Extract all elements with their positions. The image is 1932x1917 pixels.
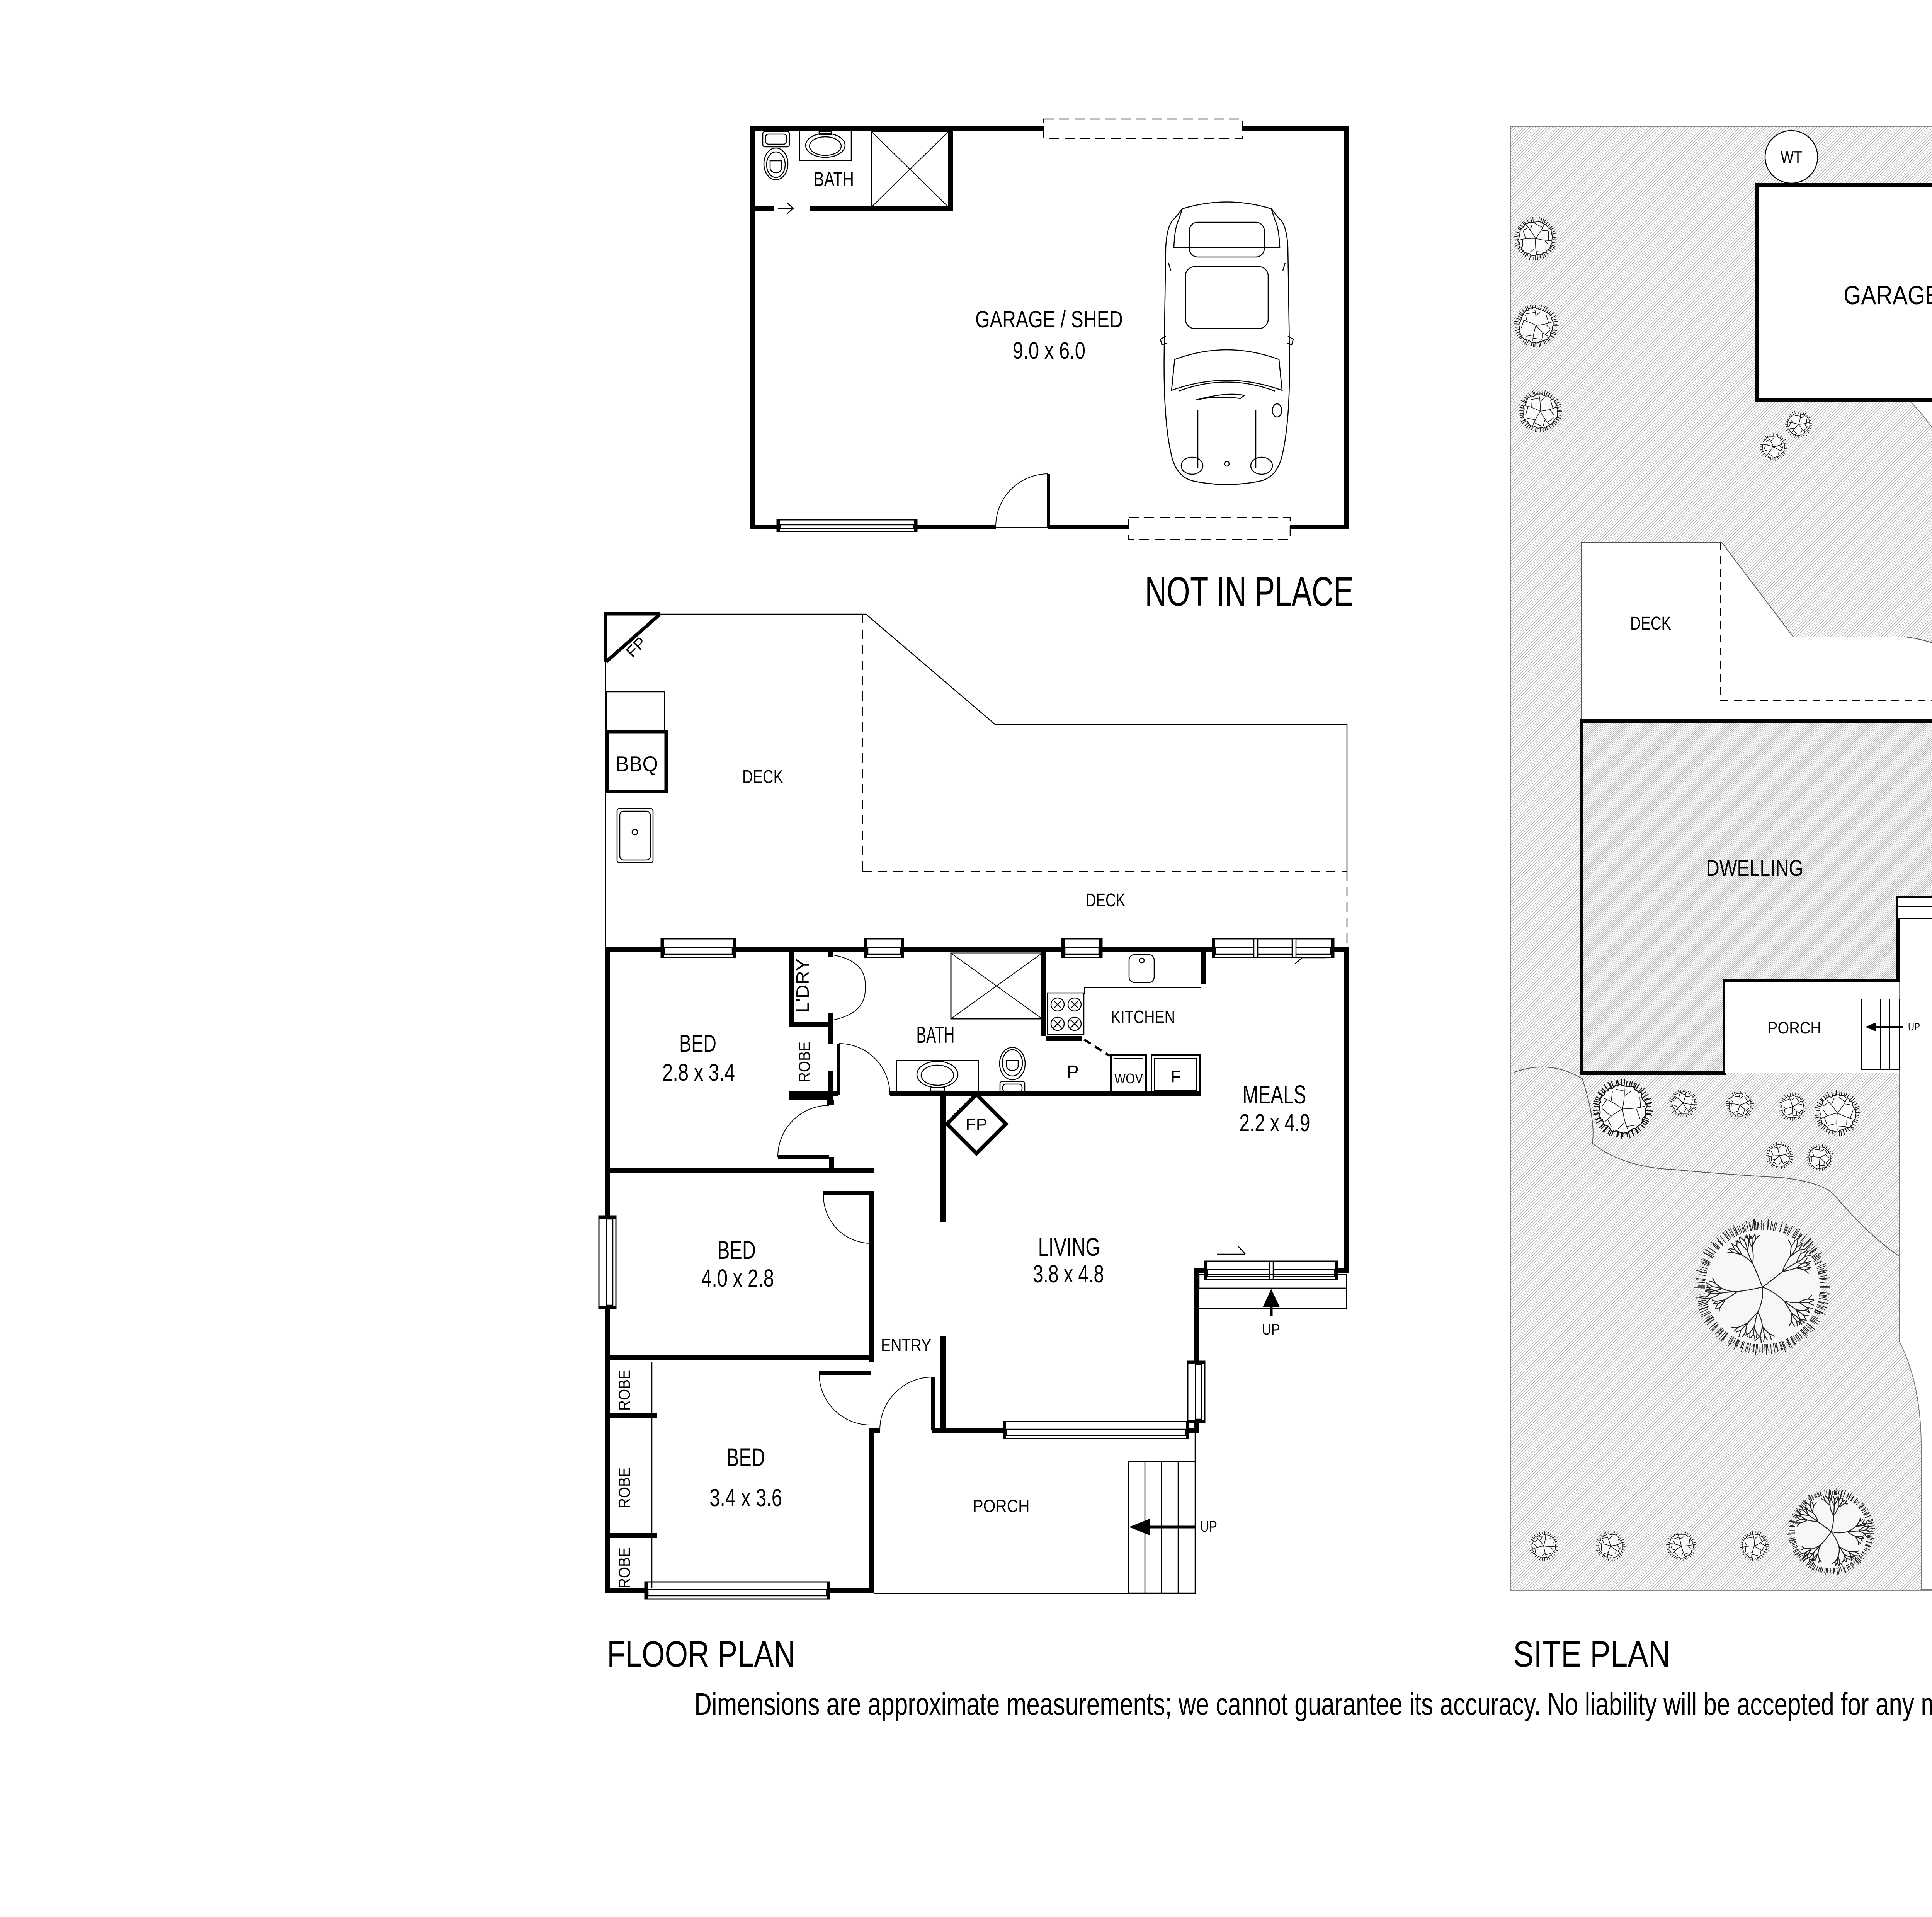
svg-text:2.8 x 3.4: 2.8 x 3.4 <box>662 1059 735 1086</box>
svg-text:3.8 x 4.8: 3.8 x 4.8 <box>1033 1260 1104 1288</box>
svg-text:UP: UP <box>1262 1321 1280 1338</box>
svg-text:PORCH: PORCH <box>973 1496 1030 1516</box>
svg-text:BATH: BATH <box>917 1022 955 1048</box>
svg-text:DECK: DECK <box>742 767 783 787</box>
svg-text:ROBE: ROBE <box>615 1548 633 1588</box>
svg-text:DWELLING: DWELLING <box>1706 856 1803 881</box>
svg-text:GARAGE / SHED: GARAGE / SHED <box>1844 281 1932 310</box>
svg-text:ROBE: ROBE <box>795 1042 813 1083</box>
svg-text:UP: UP <box>1908 1021 1920 1033</box>
svg-text:NOT IN PLACE: NOT IN PLACE <box>1145 568 1354 615</box>
svg-text:DECK: DECK <box>1630 613 1671 634</box>
svg-text:9.0 x 6.0: 9.0 x 6.0 <box>1013 337 1085 364</box>
svg-text:BBQ: BBQ <box>616 752 658 776</box>
svg-text:MEALS: MEALS <box>1243 1080 1306 1109</box>
svg-text:UP: UP <box>1200 1518 1217 1535</box>
svg-text:DECK: DECK <box>1086 890 1126 911</box>
svg-text:L'DRY: L'DRY <box>793 958 813 1013</box>
svg-text:FLOOR PLAN: FLOOR PLAN <box>607 1634 795 1675</box>
svg-text:FP: FP <box>966 1115 987 1134</box>
svg-text:LIVING: LIVING <box>1038 1233 1100 1261</box>
svg-text:ROBE: ROBE <box>615 1370 633 1411</box>
svg-text:P: P <box>1066 1062 1079 1083</box>
svg-text:ROBE: ROBE <box>615 1468 633 1508</box>
svg-text:2.2 x 4.9: 2.2 x 4.9 <box>1240 1109 1310 1137</box>
svg-text:BED: BED <box>717 1236 756 1264</box>
svg-text:KITCHEN: KITCHEN <box>1111 1007 1175 1027</box>
svg-text:GARAGE / SHED: GARAGE / SHED <box>975 306 1123 332</box>
svg-text:3.4 x 3.6: 3.4 x 3.6 <box>709 1484 782 1512</box>
svg-text:ENTRY: ENTRY <box>881 1335 931 1355</box>
svg-text:BATH: BATH <box>814 168 854 191</box>
svg-text:WT: WT <box>1781 148 1802 167</box>
svg-text:PORCH: PORCH <box>1768 1019 1821 1037</box>
svg-text:WOV: WOV <box>1114 1071 1143 1086</box>
svg-text:SITE PLAN: SITE PLAN <box>1513 1634 1670 1675</box>
svg-text:BED: BED <box>679 1030 716 1057</box>
svg-text:Dimensions are approximate mea: Dimensions are approximate measurements;… <box>694 1687 1932 1722</box>
svg-text:4.0 x 2.8: 4.0 x 2.8 <box>701 1264 774 1292</box>
svg-text:BED: BED <box>726 1443 765 1471</box>
svg-text:F: F <box>1171 1067 1181 1086</box>
